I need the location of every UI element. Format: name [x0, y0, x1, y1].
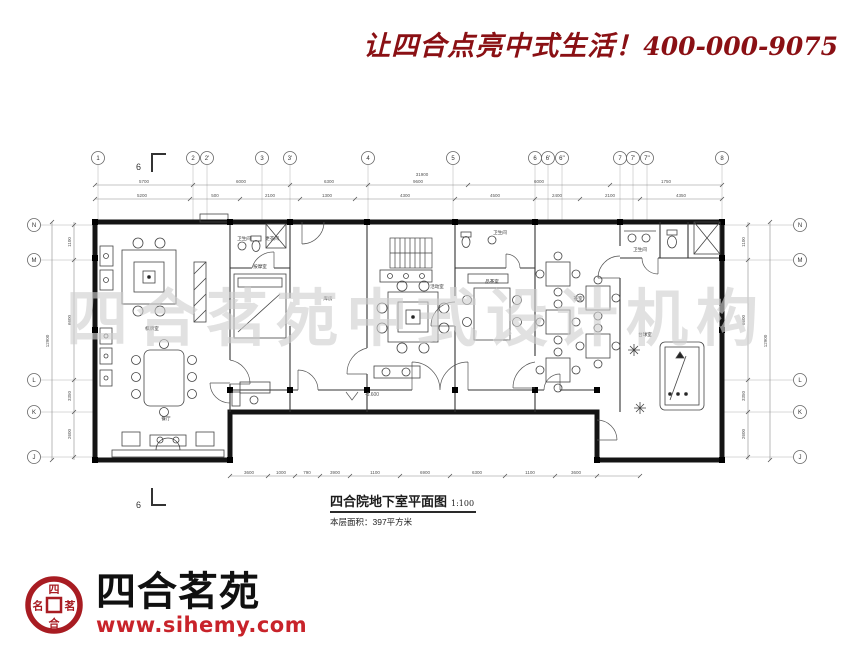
- dim-label: 2600: [741, 428, 746, 439]
- grid-label: M: [798, 258, 803, 264]
- seal-char-right: 茗: [65, 598, 76, 612]
- level-value: -3.600: [365, 392, 379, 398]
- dim-label: 790: [303, 470, 311, 475]
- dim-label: 1100: [370, 470, 380, 475]
- dim-label: 1100: [741, 237, 746, 247]
- dim-label: 4300: [400, 193, 411, 198]
- grid-label: 2': [205, 156, 209, 162]
- drawing-title-row: 四合院地下室平面图1:100: [330, 491, 476, 513]
- logo-text: 四合茗苑 www.sihemy.com: [96, 572, 307, 637]
- section-number: 6: [136, 500, 141, 510]
- grid-label: 6': [546, 156, 550, 162]
- drawing-scale: 1:100: [451, 499, 474, 508]
- seal-char-top: 四: [49, 583, 60, 596]
- grid-label: J: [33, 455, 36, 461]
- page: { "header": { "slogan": "让四合点亮中式生活！", "p…: [0, 0, 850, 660]
- dim-label: 5700: [139, 179, 150, 184]
- dim-label: 6000: [236, 179, 247, 184]
- dim-total-top: 31900: [416, 172, 429, 177]
- dim-label: 2100: [265, 193, 276, 198]
- dim-label: 1300: [322, 193, 333, 198]
- grid-label: 3': [288, 156, 292, 162]
- dim-label: 4500: [490, 193, 501, 198]
- drawing-title: 四合院地下室平面图: [330, 495, 447, 510]
- dim-label: 3350: [741, 390, 746, 401]
- company-name: 四合茗苑: [96, 572, 307, 612]
- room-label: 更衣间: [265, 235, 279, 242]
- dim-label: 1100: [67, 237, 72, 247]
- dim-label: 500: [211, 193, 219, 198]
- slogan-text: 让四合点亮中式生活！: [363, 31, 643, 62]
- grid-label: J: [799, 455, 802, 461]
- dim-label: 2600: [67, 428, 72, 439]
- seal-char-left: 名: [33, 598, 44, 612]
- dim-label: 3600: [571, 470, 582, 475]
- room-label: 餐厅: [161, 415, 171, 422]
- phone-number: 400-000-9075: [643, 32, 838, 61]
- dim-label: 6900: [420, 470, 431, 475]
- dim-label: 1750: [661, 179, 672, 184]
- header-slogan: 让四合点亮中式生活！400-000-9075: [363, 24, 838, 63]
- company-watermark: 四合茗苑中式设计机构: [66, 268, 766, 358]
- level-marker: -3.600: [346, 392, 379, 400]
- section-number: 6: [136, 162, 141, 172]
- dim-label: 1000: [276, 470, 287, 475]
- dim-label: 9600: [413, 179, 424, 184]
- grid-label: 7'': [644, 156, 650, 162]
- company-website: www.sihemy.com: [96, 613, 307, 637]
- grid-label: N: [798, 223, 802, 229]
- dim-label: 1100: [525, 470, 535, 475]
- dim-label: 3900: [330, 470, 341, 475]
- grid-label: N: [32, 223, 36, 229]
- seal-icon: 四 茗 合 名: [22, 573, 86, 637]
- drawing-area-note: 本层面积：397平方米: [330, 516, 476, 528]
- dim-label: 2100: [605, 193, 616, 198]
- drawing-title-block: 四合院地下室平面图1:100 本层面积：397平方米: [330, 491, 476, 528]
- company-logo: 四 茗 合 名 四合茗苑 www.sihemy.com: [22, 572, 307, 637]
- grid-label: K: [798, 410, 802, 416]
- lounge-sofa-furniture: [112, 432, 224, 457]
- grid-label: K: [32, 410, 36, 416]
- dim-label: 5200: [137, 193, 148, 198]
- grid-label: M: [32, 258, 37, 264]
- stairs: [390, 238, 432, 268]
- seal-char-bottom: 合: [49, 616, 61, 630]
- grid-label: 6'': [559, 156, 565, 162]
- dim-label: 6300: [472, 470, 483, 475]
- room-label: 卫生间: [633, 246, 647, 253]
- room-label: 卫生间: [493, 229, 507, 236]
- dim-label: 3350: [67, 390, 72, 401]
- dim-total-left: 12900: [45, 334, 50, 347]
- dim-label: 6000: [534, 179, 545, 184]
- dim-label: 3600: [244, 470, 255, 475]
- room-label: 卫生间: [237, 235, 251, 242]
- dim-label: 4350: [676, 193, 687, 198]
- grid-label: 7': [631, 156, 635, 162]
- dim-label: 2400: [552, 193, 563, 198]
- dim-label: 6300: [324, 179, 335, 184]
- corridor-sink-unit: [374, 366, 420, 378]
